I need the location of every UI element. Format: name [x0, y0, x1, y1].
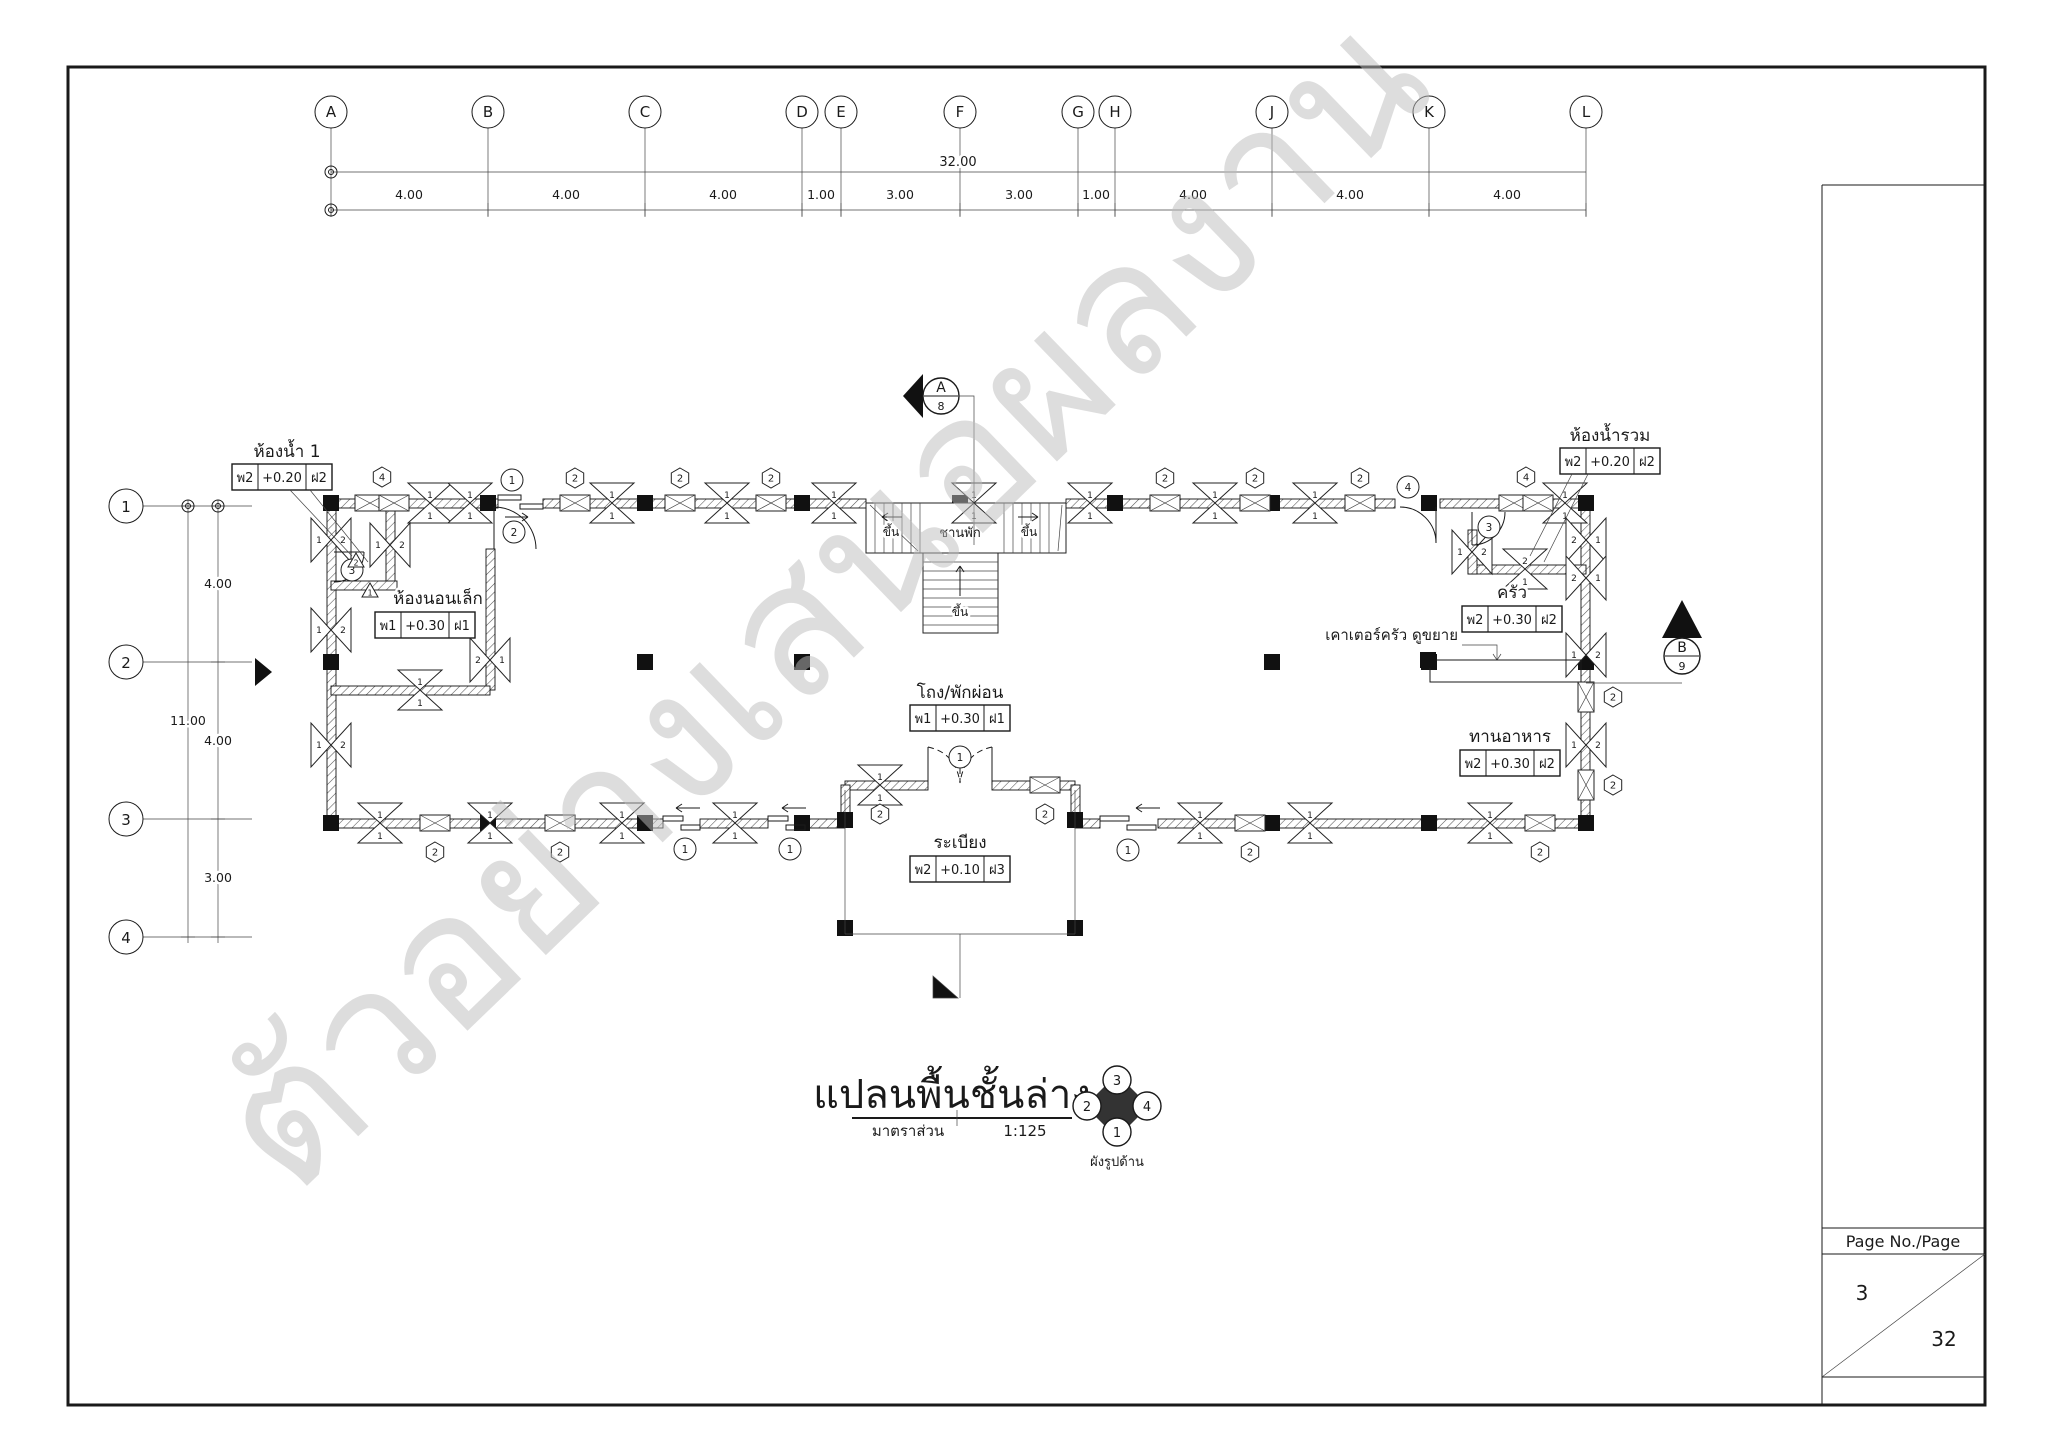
total-width-dim: 32.00: [939, 155, 976, 170]
room-name: ทานอาหาร: [1469, 727, 1551, 747]
section-letter: B: [1677, 640, 1687, 656]
stair-up-label: ขึ้น: [952, 603, 968, 619]
floor-plan-svg: 1 1 2 1 1 2 2 1 1 2 4 1: [0, 0, 2048, 1448]
bay-dim: 4.00: [709, 187, 737, 202]
wall-type: พ2: [1467, 613, 1484, 628]
compass-label: ผังรูปด้าน: [1090, 1155, 1144, 1170]
grid-letter: F: [956, 103, 965, 121]
section-sheet: 8: [938, 400, 945, 413]
stair-landing-label: ชานพัก: [939, 526, 980, 541]
grid-number: 2: [121, 654, 131, 672]
grid-number: 3: [121, 811, 131, 829]
page-header: Page No./Page: [1846, 1232, 1961, 1251]
drawing-sheet: 1 1 2 1 1 2 2 1 1 2 4 1: [0, 0, 2048, 1448]
column-grid: A B C D E F G H J K L 32.00 4.00 4.00 4.…: [315, 96, 1602, 217]
room-name: ห้องน้ำรวม: [1570, 423, 1651, 446]
compass-top: 3: [1113, 1074, 1121, 1089]
grid-letter: L: [1582, 103, 1591, 121]
row-dim: 3.00: [204, 870, 232, 885]
entry-flag: [933, 976, 958, 998]
section-flag-left: [255, 658, 272, 686]
row-grid: 1 2 3 4 4.00 4.00 3.00 11.00: [109, 489, 252, 954]
bay-dim: 4.00: [395, 187, 423, 202]
room-label-bedroom: ห้องนอนเล็ก พ1 +0.30 ฝ1: [348, 553, 483, 638]
grid-letter: D: [796, 103, 808, 121]
wall-type: พ2: [1465, 757, 1482, 772]
grid-bubbles: A B C D E F G H J K L: [315, 96, 1602, 128]
bay-dimensions: 4.00 4.00 4.00 1.00 3.00 3.00 1.00 4.00 …: [325, 187, 1586, 217]
ceiling-type: ฝ2: [311, 471, 327, 486]
bay-dim: 4.00: [1336, 187, 1364, 202]
ceiling-type: ฝ2: [1541, 613, 1557, 628]
row-dim: 4.00: [204, 576, 232, 591]
compass-bottom: 1: [1113, 1126, 1121, 1141]
bay-dim: 3.00: [886, 187, 914, 202]
wall-type: พ2: [237, 471, 254, 486]
plan-title: แปลนพื้นชั้นล่าง: [813, 1065, 1091, 1118]
title-block: Page No./Page 3 32: [1822, 185, 1985, 1405]
ceiling-type: ฝ2: [1539, 757, 1555, 772]
room-name: ครัว: [1497, 583, 1527, 603]
room-labels: ห้องน้ำ 1 พ2 +0.20 ฝ2 ห้องนอนเล็ก พ1 +0.…: [232, 423, 1660, 882]
sheet-border: [68, 67, 1985, 1405]
grid-number: 1: [121, 498, 131, 516]
wall-type: พ1: [380, 619, 397, 634]
room-name: ห้องนอนเล็ก: [393, 587, 483, 609]
bay-dim: 3.00: [1005, 187, 1033, 202]
scale-label: มาตราส่วน: [872, 1122, 944, 1140]
floor-level: +0.20: [262, 471, 302, 486]
room-name: โถง/พักผ่อน: [917, 682, 1004, 703]
total-pages: 32: [1931, 1327, 1956, 1351]
grid-letter: A: [326, 103, 337, 121]
bay-dim: 1.00: [807, 187, 835, 202]
compass-right: 4: [1143, 1100, 1151, 1115]
floor-level: +0.10: [940, 863, 980, 878]
ceiling-type: ฝ3: [989, 863, 1005, 878]
floor-level: +0.20: [1590, 455, 1630, 470]
room-label-lounge: โถง/พักผ่อน พ1 +0.30 ฝ1: [910, 682, 1010, 731]
stair-up-label: ขึ้น: [1021, 523, 1037, 539]
compass-left: 2: [1083, 1100, 1091, 1115]
room-label-porch: ระเบียง พ2 +0.10 ฝ3: [910, 833, 1010, 882]
scale-value: 1:125: [1003, 1122, 1046, 1140]
wall-type: พ2: [1565, 455, 1582, 470]
drawing-title: แปลนพื้นชั้นล่าง มาตราส่วน 1:125: [813, 1065, 1091, 1140]
grid-number: 4: [121, 929, 131, 947]
room-label-kitchen: ครัว พ2 +0.30 ฝ2: [1462, 583, 1562, 632]
bay-dim: 4.00: [1179, 187, 1207, 202]
room-name: ห้องน้ำ 1: [253, 439, 320, 462]
bay-dim: 4.00: [1493, 187, 1521, 202]
floor-level: +0.30: [1492, 613, 1532, 628]
grid-letter: C: [640, 103, 650, 121]
grid-letter: E: [836, 103, 845, 121]
wall-type: พ2: [915, 863, 932, 878]
bay-dim: 1.00: [1082, 187, 1110, 202]
floor-level: +0.30: [940, 712, 980, 727]
stair-up-label: ขึ้น: [883, 523, 899, 539]
section-letter: A: [936, 380, 946, 396]
overall-dimension: 32.00: [325, 155, 1586, 178]
kitchen-counter: เคาเตอร์ครัว ดูขยาย: [1325, 626, 1581, 682]
ceiling-type: ฝ1: [454, 619, 470, 634]
grid-letter: B: [483, 103, 493, 121]
section-sheet: 9: [1679, 660, 1686, 673]
grid-letter: J: [1269, 103, 1274, 121]
kitchen-counter-note: เคาเตอร์ครัว ดูขยาย: [1325, 626, 1458, 644]
grid-letter: H: [1109, 103, 1120, 121]
room-name: ระเบียง: [933, 833, 986, 853]
grid-letter: G: [1072, 103, 1084, 121]
floor-level: +0.30: [405, 619, 445, 634]
grid-letter: K: [1424, 103, 1435, 121]
room-label-dining: ทานอาหาร พ2 +0.30 ฝ2: [1460, 727, 1560, 776]
floor-level: +0.30: [1490, 757, 1530, 772]
row-dim: 4.00: [204, 733, 232, 748]
ceiling-type: ฝ2: [1639, 455, 1655, 470]
bay-dim: 4.00: [552, 187, 580, 202]
page-number: 3: [1856, 1281, 1869, 1305]
total-height-dim: 11.00: [170, 713, 206, 728]
wall-type: พ1: [915, 712, 932, 727]
ceiling-type: ฝ1: [989, 712, 1005, 727]
